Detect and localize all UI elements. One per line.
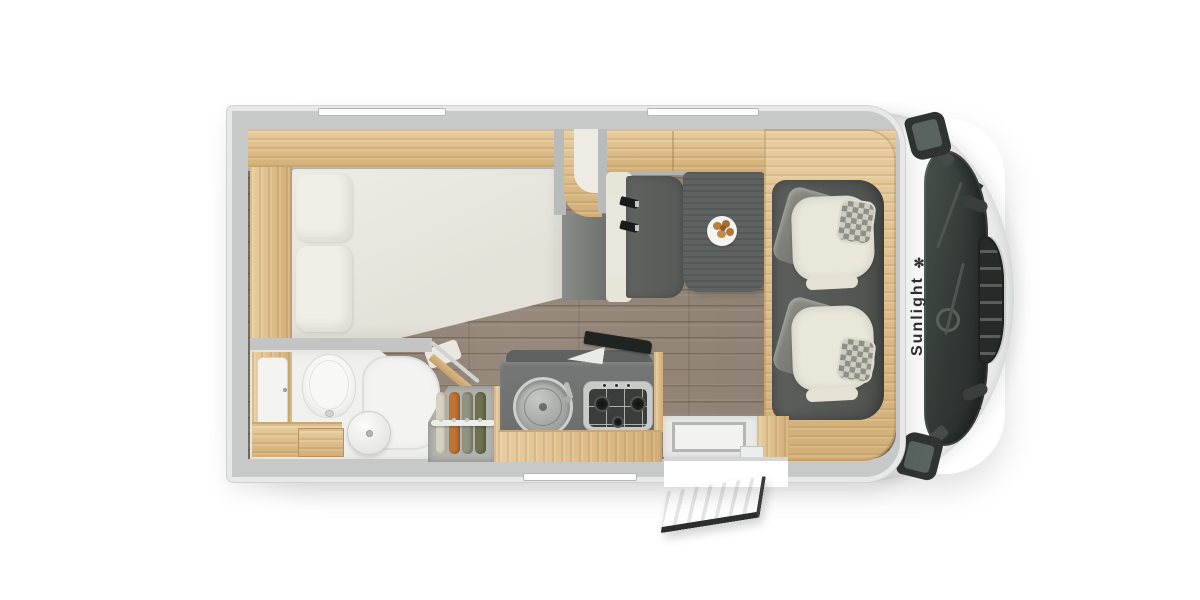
- skylight: [647, 108, 759, 116]
- wardrobe-column: [250, 167, 292, 345]
- counter-end-panel: [654, 352, 663, 432]
- bathroom-counter-box: [298, 428, 344, 457]
- cabinet-seam: [672, 131, 674, 171]
- brand-text: Sunlight: [909, 276, 927, 356]
- pillow: [296, 246, 352, 332]
- pastry-icon: [717, 230, 726, 238]
- faucet-base: [564, 396, 571, 403]
- burner: [594, 396, 610, 412]
- motorhome-floorplan: Sunlight✻: [0, 0, 1200, 600]
- pillow: [296, 174, 352, 242]
- door-sill: [664, 457, 788, 461]
- hob-knob-icon: [602, 383, 607, 388]
- partition-panel: [562, 214, 606, 300]
- entry-step-frame: [672, 422, 746, 452]
- bathroom-wall: [250, 338, 432, 352]
- sink-drain-icon: [539, 403, 547, 411]
- seatbelt-buckle-icon: [635, 201, 639, 207]
- pastry-icon: [726, 228, 734, 236]
- pastry-icon: [720, 225, 726, 231]
- burner: [630, 396, 646, 412]
- brand-logo-icon: ✻: [911, 254, 926, 269]
- skylight: [318, 108, 446, 116]
- hob-knob-icon: [626, 383, 631, 388]
- kitchen-front-panel: [498, 430, 662, 462]
- basin-drain-icon: [366, 430, 373, 437]
- hanger-hook-icon: [478, 418, 482, 422]
- driver-headrest: [835, 336, 877, 385]
- toilet-lid-line: [309, 360, 349, 410]
- hob-knob-icon: [614, 383, 619, 388]
- toilet-flush-icon: [325, 410, 334, 417]
- burner: [612, 416, 624, 428]
- vanity-handle-icon: [283, 388, 287, 392]
- hanger-hook-icon: [465, 418, 469, 422]
- dinette-bench-cushion: [626, 176, 684, 298]
- driver-armrest: [806, 387, 859, 403]
- radiator-grille: [978, 236, 1004, 364]
- passenger-armrest: [806, 275, 859, 291]
- side-window: [523, 473, 637, 481]
- brand-wordmark: Sunlight✻: [902, 244, 934, 366]
- overhead-cabinet-left: [248, 129, 556, 171]
- hanger-hook-icon: [439, 418, 443, 422]
- hanger-hook-icon: [452, 418, 456, 422]
- seatbelt-buckle-icon: [635, 225, 639, 231]
- passenger-headrest: [835, 198, 877, 247]
